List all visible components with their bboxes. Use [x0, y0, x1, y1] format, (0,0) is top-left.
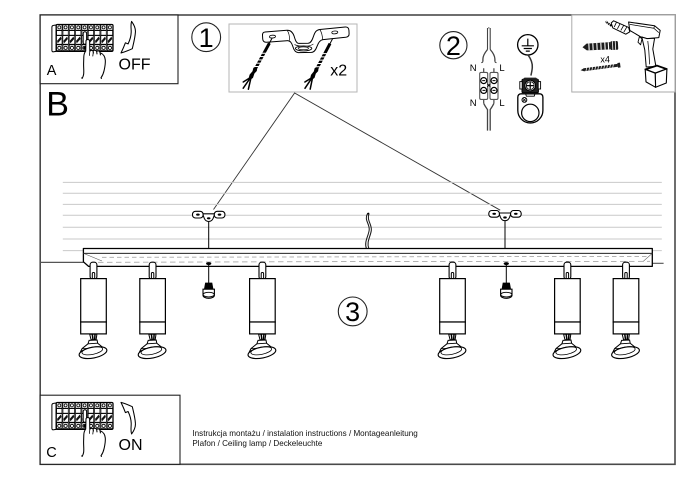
svg-text:x4: x4	[600, 55, 610, 65]
svg-text:B: B	[46, 85, 69, 123]
svg-text:3: 3	[345, 297, 360, 327]
svg-text:L: L	[499, 63, 504, 74]
svg-text:N: N	[470, 98, 477, 109]
svg-text:Plafon / Ceiling lamp / Deckel: Plafon / Ceiling lamp / Deckeleuchte	[192, 439, 323, 448]
svg-text:Instrukcja montażu / instalati: Instrukcja montażu / instalation instruc…	[192, 429, 417, 438]
svg-text:N: N	[470, 63, 477, 74]
svg-text:2: 2	[446, 31, 461, 61]
svg-text:OFF: OFF	[119, 57, 151, 74]
svg-text:A: A	[47, 63, 57, 79]
svg-text:1: 1	[199, 23, 214, 53]
svg-text:x2: x2	[330, 63, 347, 80]
svg-text:C: C	[46, 445, 56, 461]
svg-text:ON: ON	[119, 437, 143, 454]
svg-text:L: L	[499, 98, 504, 109]
